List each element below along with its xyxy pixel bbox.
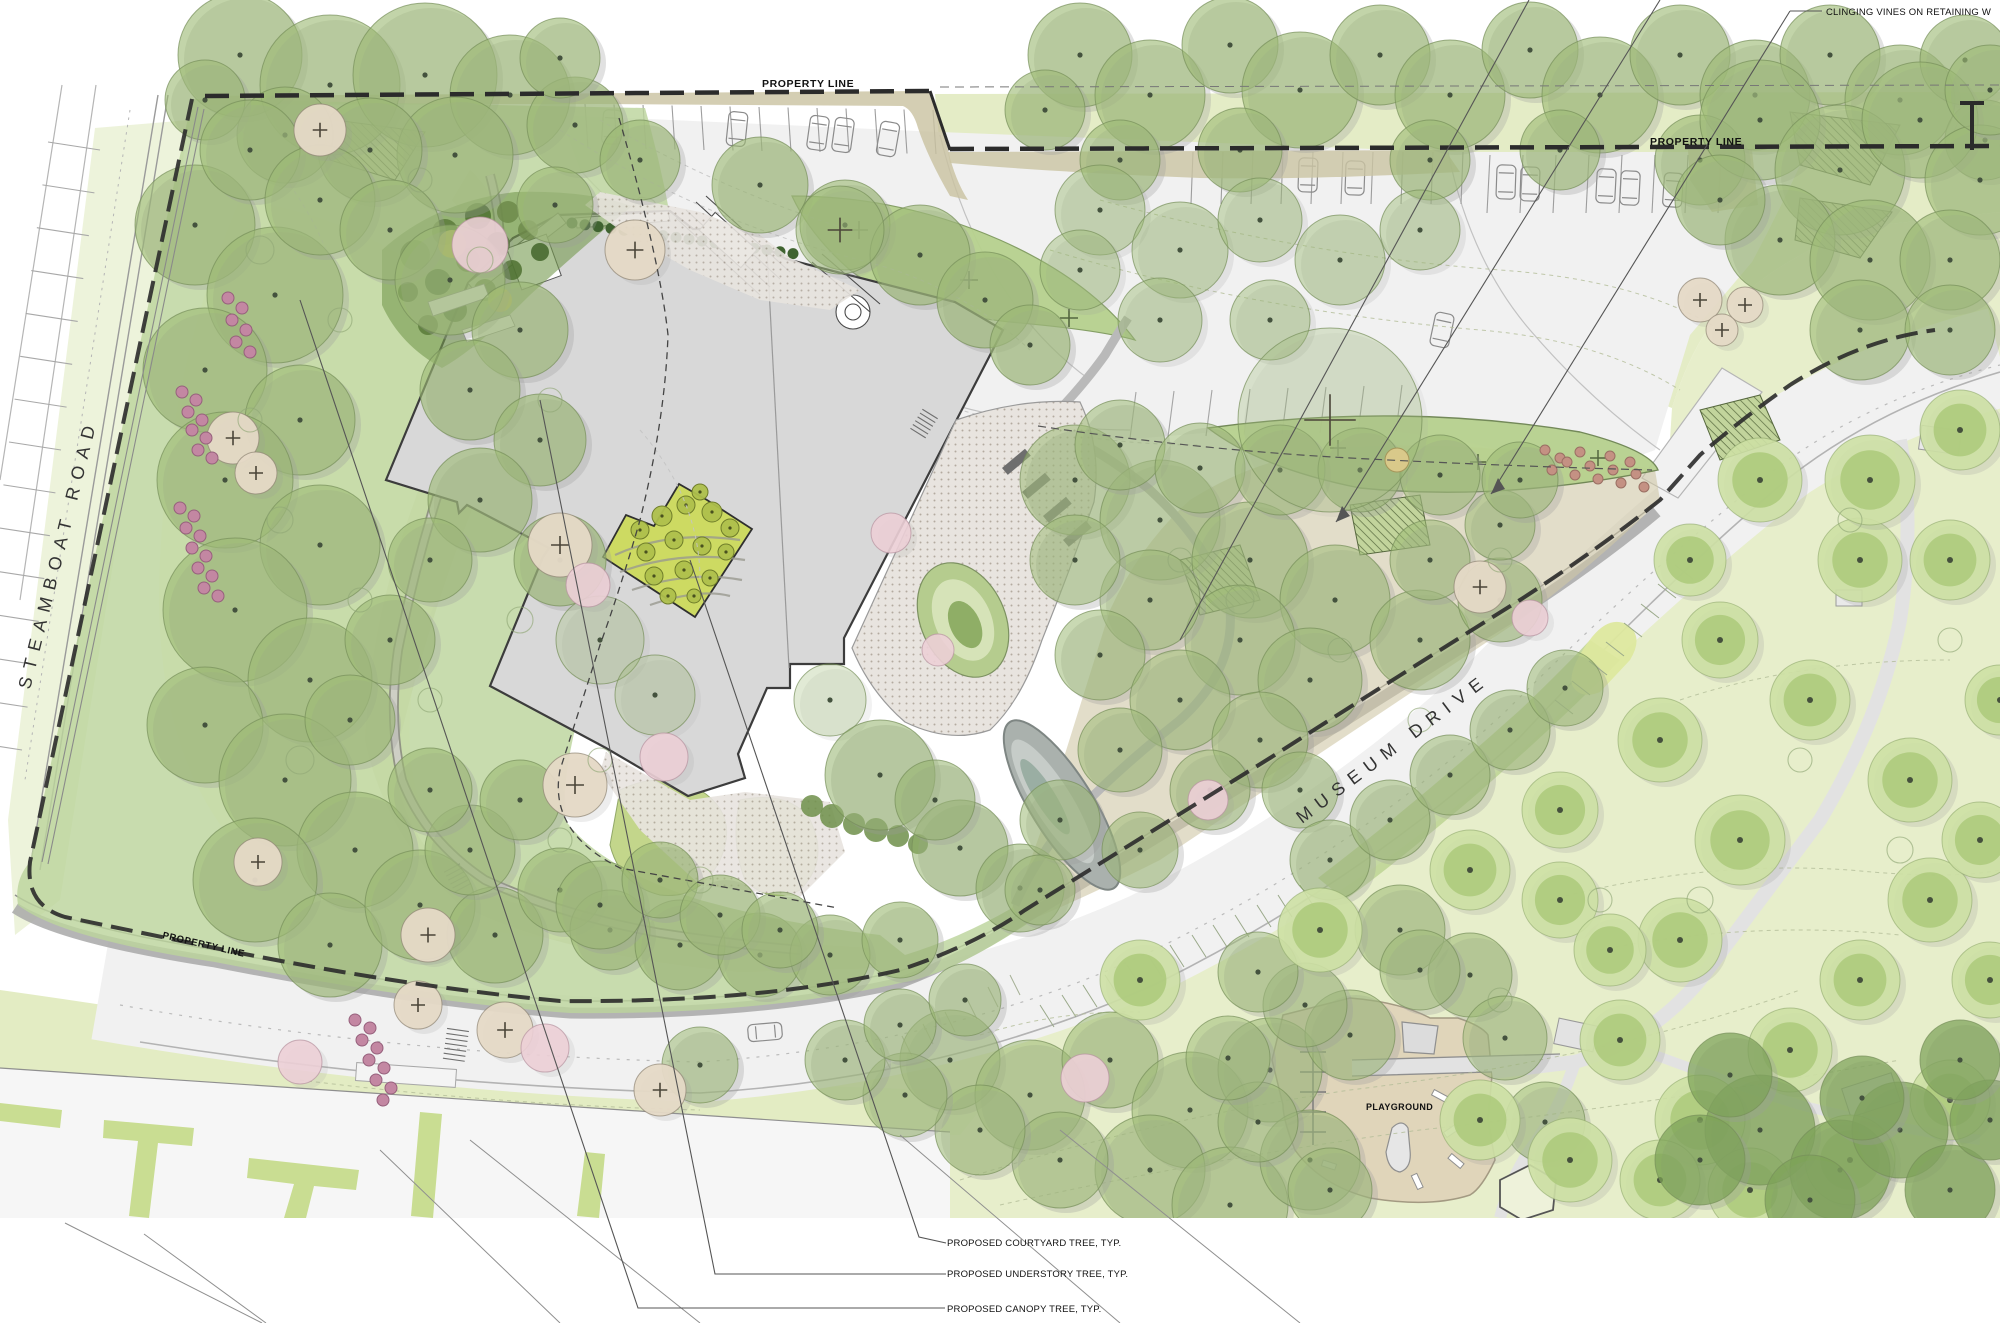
svg-text:PROPERTY LINE: PROPERTY LINE [762,78,854,90]
svg-text:CLINGING VINES ON RETAINING W: CLINGING VINES ON RETAINING W [1826,7,1991,18]
svg-text:PROPERTY LINE: PROPERTY LINE [1650,136,1742,148]
svg-text:PLAYGROUND: PLAYGROUND [1366,1102,1433,1112]
svg-text:PROPOSED UNDERSTORY TREE, TYP.: PROPOSED UNDERSTORY TREE, TYP. [947,1269,1128,1280]
svg-text:PROPOSED CANOPY TREE, TYP.: PROPOSED CANOPY TREE, TYP. [947,1304,1101,1315]
svg-text:PROPOSED COURTYARD TREE, TYP.: PROPOSED COURTYARD TREE, TYP. [947,1238,1121,1249]
